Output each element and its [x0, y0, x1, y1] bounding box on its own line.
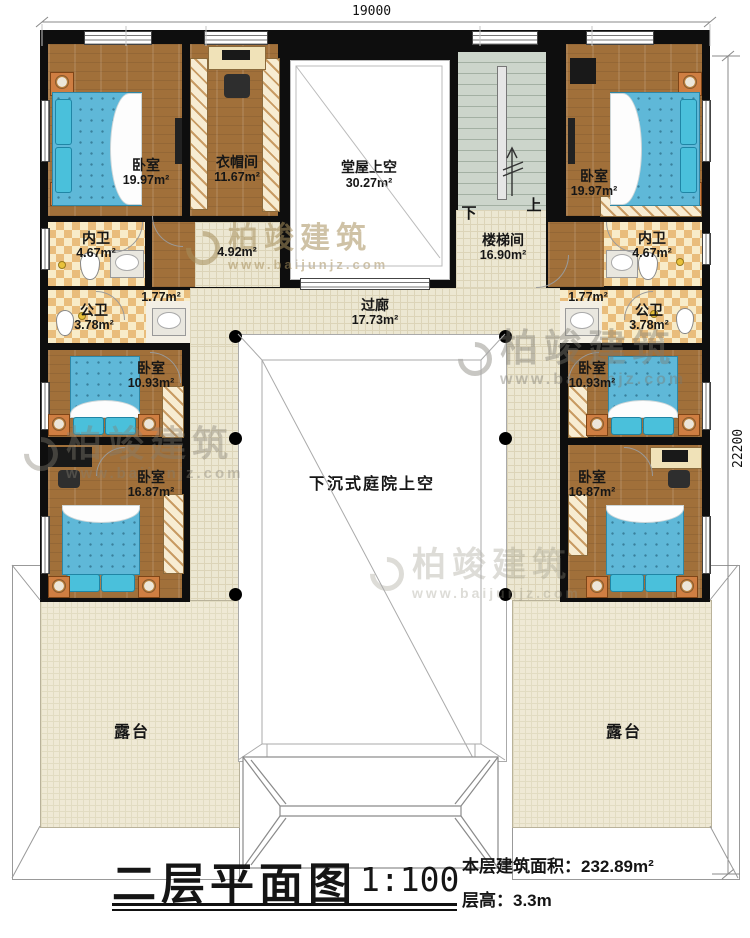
pillow	[105, 417, 136, 435]
window	[702, 233, 711, 265]
wardrobe	[190, 58, 208, 210]
window	[702, 516, 711, 574]
room-label: 露台	[606, 724, 642, 742]
room-label: 衣帽间	[216, 155, 258, 170]
nightstand	[138, 414, 160, 436]
window	[41, 228, 50, 270]
stair-down-label: 下	[461, 206, 476, 223]
floor-area-note: 本层建筑面积：232.89m²	[462, 852, 654, 877]
room-area: 11.67m²	[214, 171, 260, 185]
chair	[668, 470, 690, 488]
pillow	[66, 574, 100, 592]
tv	[568, 118, 575, 164]
corridor-floor-left	[190, 346, 238, 600]
window	[300, 278, 430, 290]
room-label: 公卫	[635, 303, 663, 318]
floor-height-note: 层高：3.3m	[462, 886, 552, 911]
drawing-scale: 1:100	[360, 860, 459, 899]
room-area: 3.78m²	[629, 319, 669, 333]
room-label: 卧室	[580, 169, 608, 184]
room-area: 16.90m²	[480, 249, 527, 263]
room-label: 楼梯间	[482, 233, 524, 248]
nightstand	[586, 576, 608, 598]
room-label: 堂屋上空	[341, 160, 397, 175]
dimension-right: 22200	[731, 429, 746, 468]
wardrobe	[568, 494, 588, 556]
nightstand	[586, 414, 608, 436]
window	[204, 31, 268, 45]
pillow	[680, 99, 697, 145]
floor-drain	[676, 258, 684, 266]
pillow	[101, 574, 135, 592]
room-label: 下沉式庭院上空	[309, 476, 435, 494]
room-area: 30.27m²	[346, 177, 393, 191]
window	[586, 31, 654, 45]
room-area: 16.87m²	[569, 486, 616, 500]
nightstand	[48, 576, 70, 598]
room-label: 过廊	[361, 298, 389, 313]
pillow	[610, 574, 644, 592]
pillow	[73, 417, 104, 435]
room-area: 10.93m²	[569, 377, 616, 391]
title-underline	[112, 903, 457, 906]
room-area: 17.73m²	[352, 314, 399, 328]
desk	[48, 447, 92, 467]
pillow	[643, 417, 674, 435]
room-label: 卧室	[137, 470, 165, 485]
column	[229, 588, 242, 601]
window	[41, 100, 50, 162]
window	[84, 31, 152, 45]
window	[702, 382, 711, 430]
stair-rail	[497, 66, 507, 200]
wardrobe	[162, 386, 184, 438]
room-area: 4.67m²	[632, 247, 672, 261]
dresser-top	[222, 50, 250, 60]
pillow	[645, 574, 679, 592]
room-area: 19.97m²	[123, 174, 170, 188]
title-underline	[112, 909, 457, 911]
room-label: 露台	[114, 724, 150, 742]
chair	[224, 74, 250, 98]
room-area: 10.93m²	[128, 377, 175, 391]
room-label: 卧室	[578, 470, 606, 485]
window	[472, 31, 538, 45]
room-label: 内卫	[638, 231, 666, 246]
terrace-right-floor	[512, 600, 712, 828]
wardrobe	[568, 386, 588, 438]
floor-drain	[58, 261, 66, 269]
room-area: 19.97m²	[571, 185, 618, 199]
column	[229, 432, 242, 445]
pillow	[55, 99, 72, 145]
room-label: 卧室	[137, 361, 165, 376]
sink	[152, 308, 186, 336]
window	[702, 100, 711, 162]
stair-up-label: 上	[526, 198, 541, 215]
column	[499, 588, 512, 601]
room-area: 1.77m²	[568, 291, 608, 305]
courtyard-void	[238, 334, 507, 762]
room-area: 4.92m²	[217, 246, 257, 260]
room-label: 卧室	[578, 361, 606, 376]
dimension-top: 19000	[352, 4, 391, 19]
nightstand	[678, 414, 700, 436]
tv	[175, 118, 182, 164]
room-label: 卧室	[132, 158, 160, 173]
nightstand	[48, 414, 70, 436]
desk	[662, 450, 688, 462]
room-area: 16.87m²	[128, 486, 175, 500]
room-label: 内卫	[82, 231, 110, 246]
pillow	[680, 147, 697, 193]
column	[499, 432, 512, 445]
column	[499, 330, 512, 343]
bed-sheet	[110, 93, 142, 205]
room-label: 公卫	[80, 303, 108, 318]
wardrobe	[262, 58, 280, 212]
room-area: 4.67m²	[76, 247, 116, 261]
nightstand	[138, 576, 160, 598]
floor-plan: 柏竣建筑 www.baijunjz.com 柏竣建筑 www.baijunjz.…	[0, 0, 750, 938]
sink	[565, 308, 599, 336]
corridor-floor-right	[507, 346, 560, 600]
pillow	[55, 147, 72, 193]
window	[41, 516, 50, 574]
desk	[570, 58, 596, 84]
column	[229, 330, 242, 343]
chair	[58, 470, 80, 488]
terrace-left-floor	[40, 600, 240, 828]
pillow	[611, 417, 642, 435]
room-area: 1.77m²	[141, 291, 181, 305]
nightstand	[676, 576, 698, 598]
wardrobe	[163, 494, 184, 574]
room-area: 3.78m²	[74, 319, 114, 333]
